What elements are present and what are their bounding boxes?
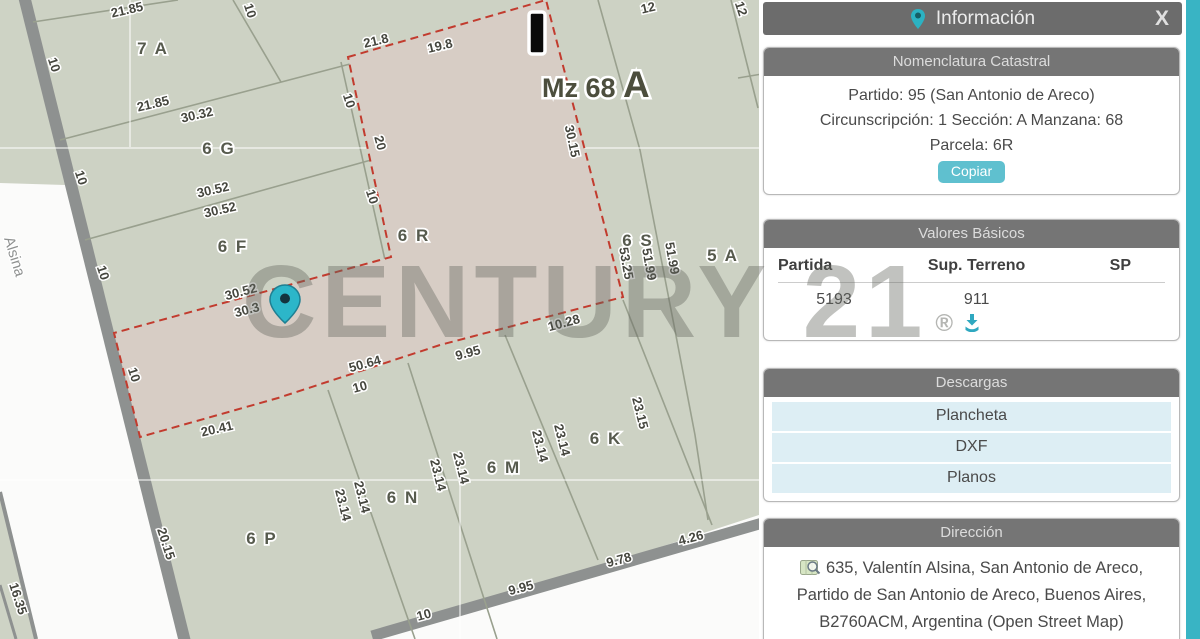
nomenclatura-card-title: Nomenclatura Catastral [764,48,1179,76]
descargas-list: PlanchetaDXFPlanos [764,397,1179,501]
parcel-label-6m: 6 M [487,458,521,477]
copy-button[interactable]: Copiar [938,161,1005,183]
circunscripcion-line: Circunscripción: 1 Sección: A Manzana: 6… [768,108,1175,133]
descargas-card-title: Descargas [764,369,1179,397]
valores-card: Valores Básicos Partida Sup. Terreno SP … [763,219,1180,341]
download-item-dxf[interactable]: DXF [772,433,1171,464]
nomenclatura-card: Nomenclatura Catastral Partido: 95 (San … [763,47,1180,195]
panel-header: Información X [763,2,1182,35]
sup-terreno-value: 911 [890,291,1063,309]
parcel-label-6s: 6 S [622,231,654,250]
direccion-card: Dirección 635, Valentín Alsina, San Anto… [763,518,1180,639]
direccion-card-title: Dirección [764,519,1179,547]
cadastral-map[interactable]: 21.851021.819.812121021.8530.32102030.15… [0,0,762,639]
parcel-label-6k: 6 K [590,429,622,448]
edge-accent-stripe [1186,0,1200,639]
parcel-label-6f: 6 F [218,237,249,256]
download-item-plancheta[interactable]: Plancheta [772,402,1171,433]
download-item-planos[interactable]: Planos [772,464,1171,493]
sp-value [1063,291,1165,309]
location-pin-icon [910,8,926,30]
parcel-label-6n: 6 N [387,488,419,507]
map-search-icon [800,559,821,576]
parcel-label-6p: 6 P [246,529,278,548]
valores-card-title: Valores Básicos [764,220,1179,248]
partido-line: Partido: 95 (San Antonio de Areco) [768,83,1175,108]
parcela-line: Parcela: 6R [768,133,1175,158]
col-sp: SP [1063,257,1165,275]
parcel-label-5a: 5 A [707,246,739,265]
col-partida: Partida [778,257,890,275]
parcel-label-7a: 7 A [137,39,169,58]
direccion-text: 635, Valentín Alsina, San Antonio de Are… [797,559,1147,631]
download-icon[interactable] [961,312,983,332]
parcel-label-6r: 6 R [398,226,430,245]
partida-value: 5193 [778,291,890,309]
panel-title: Información [936,8,1035,30]
col-sup-terreno: Sup. Terreno [890,257,1063,275]
parcel-label-6g: 6 G [202,139,235,158]
info-panel: Información X Nomenclatura Catastral Par… [759,0,1186,639]
cursor-marker-icon [529,12,545,54]
app-window: 21.851021.819.812121021.8530.32102030.15… [0,0,1200,639]
close-button[interactable]: X [1155,5,1169,33]
direccion-body: 635, Valentín Alsina, San Antonio de Are… [764,547,1179,639]
descargas-card: Descargas PlanchetaDXFPlanos [763,368,1180,502]
